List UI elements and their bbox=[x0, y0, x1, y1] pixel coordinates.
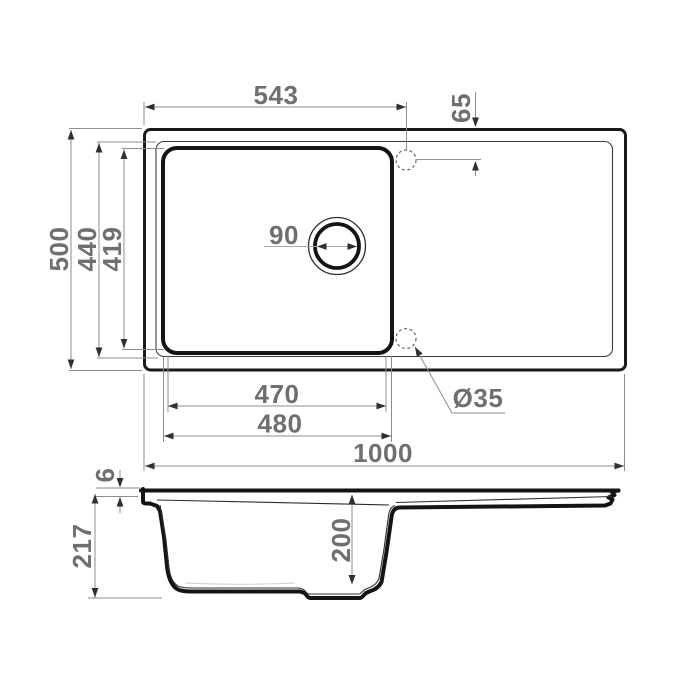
arrowhead bbox=[96, 348, 103, 358]
arrowhead bbox=[164, 433, 174, 440]
bowl-inner-surface-line bbox=[160, 505, 395, 594]
arrowhead bbox=[96, 143, 103, 153]
dim-overall-width: 1000 bbox=[144, 374, 625, 471]
technical-drawing: 543 65 500 440 bbox=[0, 0, 700, 700]
plan-view: 543 65 500 440 bbox=[44, 80, 626, 471]
arrowhead bbox=[168, 403, 178, 410]
arrowhead bbox=[68, 130, 75, 140]
dim-label-543: 543 bbox=[254, 80, 299, 110]
bowl-bottom-highlight bbox=[185, 583, 295, 584]
dim-label-419: 419 bbox=[97, 227, 127, 272]
dim-bowl-depth: 200 bbox=[326, 495, 356, 585]
arrowhead bbox=[117, 497, 124, 507]
dim-label-65: 65 bbox=[446, 93, 476, 123]
dim-label-90: 90 bbox=[269, 220, 299, 250]
dim-label-470: 470 bbox=[255, 379, 300, 409]
arrowhead bbox=[121, 150, 128, 160]
dim-label-d35: Ø35 bbox=[453, 383, 504, 413]
arrowhead bbox=[145, 463, 155, 470]
arrowhead bbox=[397, 104, 407, 111]
arrowhead bbox=[615, 463, 625, 470]
arrowhead bbox=[92, 588, 99, 598]
dim-label-6: 6 bbox=[90, 468, 120, 483]
dim-overall-height: 217 bbox=[67, 494, 162, 598]
arrowhead bbox=[145, 104, 155, 111]
arrowhead bbox=[349, 495, 356, 505]
dim-label-1000: 1000 bbox=[353, 438, 413, 468]
arrowhead bbox=[377, 403, 387, 410]
dim-label-480: 480 bbox=[258, 409, 303, 439]
dim-rim-thickness: 6 bbox=[90, 468, 140, 513]
dim-label-200: 200 bbox=[326, 518, 356, 563]
drawing-svg: 543 65 500 440 bbox=[0, 0, 700, 700]
dim-label-217: 217 bbox=[67, 524, 97, 569]
section-view: 6 217 200 bbox=[67, 468, 619, 598]
dim-label-500: 500 bbox=[44, 227, 74, 272]
arrowhead bbox=[121, 339, 128, 349]
drainboard-surface-line bbox=[396, 497, 612, 503]
arrowhead bbox=[92, 494, 99, 504]
arrowhead bbox=[68, 360, 75, 370]
arrowhead bbox=[349, 575, 356, 585]
